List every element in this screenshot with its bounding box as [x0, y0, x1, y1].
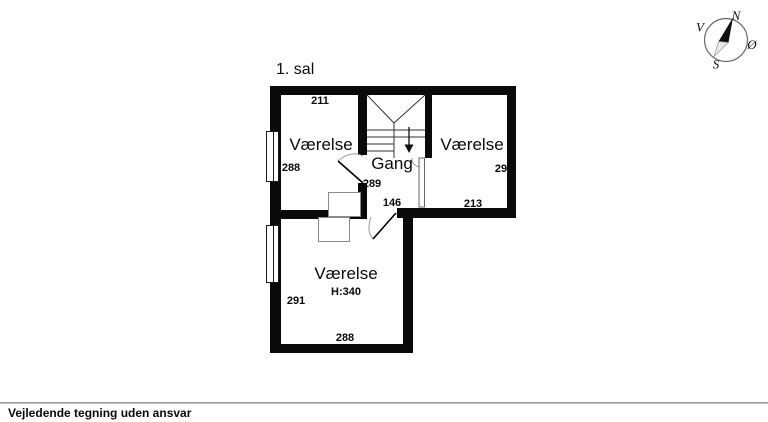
- plan-vector-overlay: N V Ø S: [0, 0, 768, 422]
- compass-label-south: S: [713, 57, 720, 72]
- compass-icon: N V Ø S: [696, 8, 757, 72]
- dim-bottom-width: 288: [336, 332, 354, 344]
- dim-bottom-depth: 291: [287, 295, 305, 307]
- room-label-hall: Gang: [371, 155, 413, 174]
- wall-interior-vertical-upper: [358, 95, 367, 155]
- floor-title: 1. sal: [276, 61, 314, 79]
- compass-label-west: V: [696, 20, 706, 35]
- chimney-upper: [328, 192, 361, 217]
- dim-hall-door: 146: [383, 197, 401, 209]
- chimney-lower: [318, 217, 350, 242]
- dim-right-width: 213: [464, 198, 482, 210]
- window-lower-left: [266, 225, 279, 283]
- wall-stair-east: [425, 95, 432, 158]
- room-label-bottom: Værelse: [314, 265, 377, 284]
- dim-topleft-width: 211: [311, 95, 329, 107]
- compass-label-north: N: [731, 8, 742, 23]
- wall-right: [507, 86, 516, 218]
- room-label-right: Værelse: [440, 136, 503, 155]
- room-label-top-left: Værelse: [289, 136, 352, 155]
- compass-label-east: Ø: [746, 37, 757, 52]
- compass-needle-north: [719, 18, 734, 43]
- floorplan-canvas: 1. sal: [0, 0, 768, 422]
- door-right-room: [412, 158, 425, 207]
- compass-needle-south: [714, 42, 729, 57]
- stair-direction-arrow-icon: [405, 127, 414, 153]
- wall-left: [270, 86, 281, 353]
- dim-right-depth: 291: [495, 163, 513, 175]
- wall-right-section-bottom: [397, 208, 516, 218]
- wall-bottom-room-east: [403, 208, 413, 353]
- wall-top: [271, 86, 516, 95]
- disclaimer-text: Vejledende tegning uden ansvar: [8, 406, 191, 420]
- wall-bottom: [270, 344, 413, 353]
- footer-divider: [0, 402, 768, 404]
- ceiling-height-note: H:340: [331, 286, 361, 298]
- dim-hall: 289: [363, 178, 381, 190]
- door-topleft-room: [338, 154, 363, 183]
- staircase: [367, 95, 425, 158]
- dim-topleft-depth: 288: [282, 162, 300, 174]
- window-upper-left: [266, 131, 279, 182]
- door-bottom-room: [369, 213, 396, 239]
